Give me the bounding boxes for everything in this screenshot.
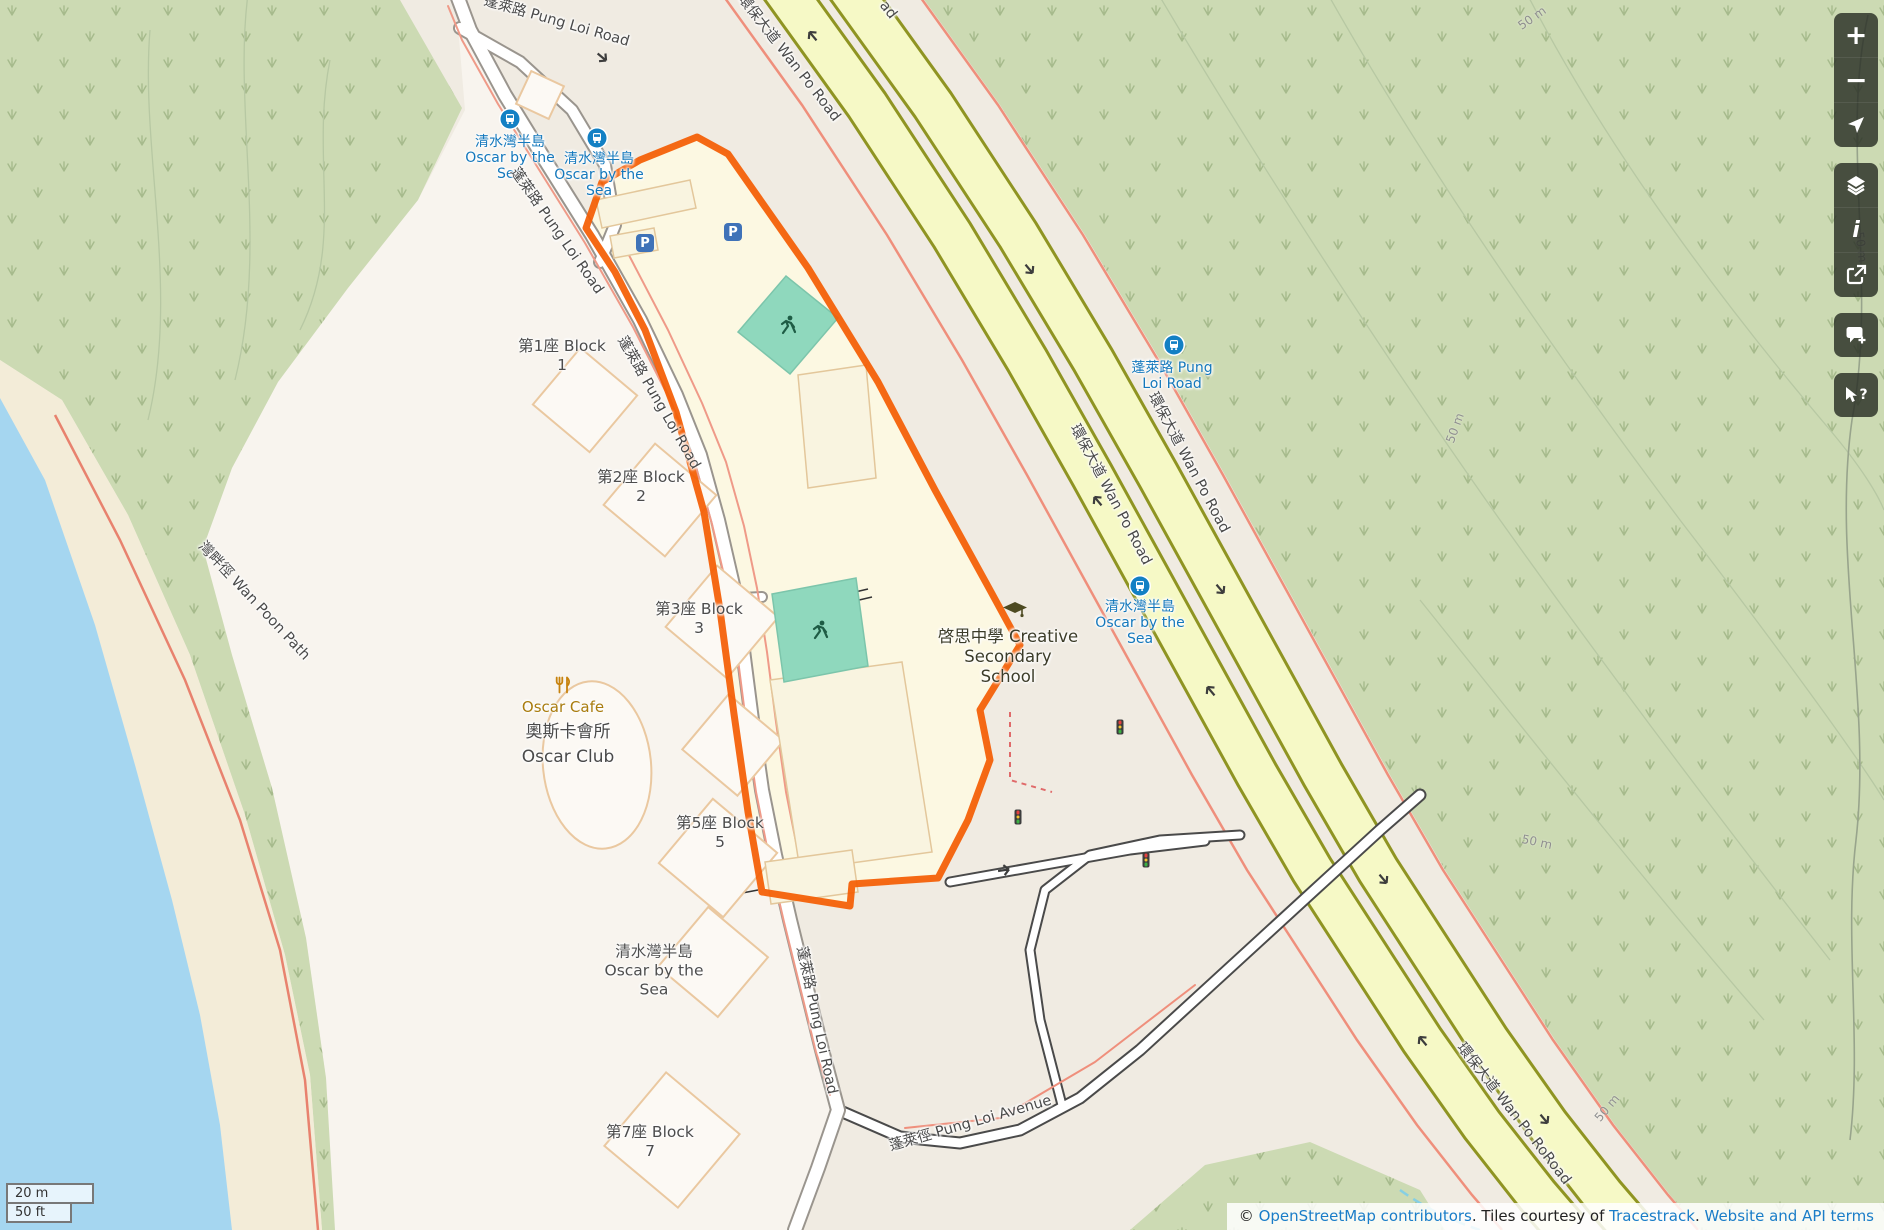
locate-arrow-icon bbox=[1846, 115, 1866, 135]
parking-icon: P bbox=[636, 234, 654, 252]
add-note-icon bbox=[1845, 324, 1867, 346]
bus-stop-icon bbox=[588, 129, 607, 148]
zoom-in-button[interactable]: + bbox=[1834, 13, 1878, 58]
traffic-signal-icon bbox=[1117, 720, 1124, 735]
parking-icon: P bbox=[724, 223, 742, 241]
period-text: . bbox=[1695, 1207, 1700, 1225]
scale-metric: 20 m bbox=[6, 1183, 94, 1204]
bus-stop-label: 清水灣半島Oscar by theSea bbox=[1095, 599, 1184, 647]
osm-contributors-link[interactable]: OpenStreetMap contributors bbox=[1259, 1207, 1472, 1225]
website-api-terms-link[interactable]: Website and API terms bbox=[1705, 1207, 1875, 1225]
bus-stop-label: 清水灣半島Oscar by theSea bbox=[554, 151, 643, 199]
block-label: 第2座 Block2 bbox=[597, 468, 685, 506]
cafe-label: Oscar Cafe bbox=[522, 698, 604, 716]
zoom-out-button[interactable]: − bbox=[1834, 58, 1878, 103]
query-features-button[interactable]: ? bbox=[1834, 373, 1878, 417]
layers-icon bbox=[1845, 174, 1867, 196]
bus-stop-icon bbox=[501, 110, 520, 129]
locate-button[interactable] bbox=[1834, 103, 1878, 147]
scale-bar: 20 m 50 ft bbox=[6, 1183, 94, 1223]
bus-stop-label: 蓬萊路 PungLoi Road bbox=[1131, 360, 1212, 392]
bus-stop-icon bbox=[1131, 577, 1150, 596]
note-control-group bbox=[1834, 313, 1878, 357]
traffic-signal-icon bbox=[1015, 810, 1022, 825]
traffic-signal-icon bbox=[1143, 853, 1150, 868]
query-control-group: ? bbox=[1834, 373, 1878, 417]
zoom-control-group: + − bbox=[1834, 13, 1878, 147]
block-label: 第7座 Block7 bbox=[606, 1123, 694, 1161]
school-label: 啓思中學 CreativeSecondarySchool bbox=[938, 627, 1078, 687]
block-label: 第3座 Block3 bbox=[655, 600, 743, 638]
scale-imperial: 50 ft bbox=[6, 1202, 72, 1223]
share-icon bbox=[1845, 264, 1867, 286]
map-canvas[interactable]: P P 清水灣半島Oscar by theSea 清水灣半島Oscar by t… bbox=[0, 0, 1884, 1230]
add-note-button[interactable] bbox=[1834, 313, 1878, 357]
attribution-bar: © OpenStreetMap contributors. Tiles cour… bbox=[1227, 1203, 1884, 1230]
school-icon bbox=[1003, 602, 1027, 622]
copyright-symbol: © bbox=[1239, 1207, 1254, 1225]
map-controls: + − i bbox=[1834, 13, 1878, 433]
share-button[interactable] bbox=[1834, 253, 1878, 297]
info-button[interactable]: i bbox=[1834, 208, 1878, 253]
restaurant-icon bbox=[555, 677, 572, 698]
tracestrack-link[interactable]: Tracestrack bbox=[1609, 1207, 1695, 1225]
layers-button[interactable] bbox=[1834, 163, 1878, 208]
info-icon: i bbox=[1852, 218, 1860, 243]
tiles-courtesy-text: . Tiles courtesy of bbox=[1472, 1207, 1605, 1225]
query-cursor-icon: ? bbox=[1844, 386, 1867, 404]
residential-area-label: 清水灣半島Oscar by theSea bbox=[605, 943, 704, 1000]
block-label: 第1座 Block1 bbox=[518, 337, 606, 375]
club-label: 奧斯卡會所Oscar Club bbox=[522, 720, 615, 770]
block-label: 第5座 Block5 bbox=[676, 814, 764, 852]
bus-stop-icon bbox=[1165, 336, 1184, 355]
layers-control-group: i bbox=[1834, 163, 1878, 297]
